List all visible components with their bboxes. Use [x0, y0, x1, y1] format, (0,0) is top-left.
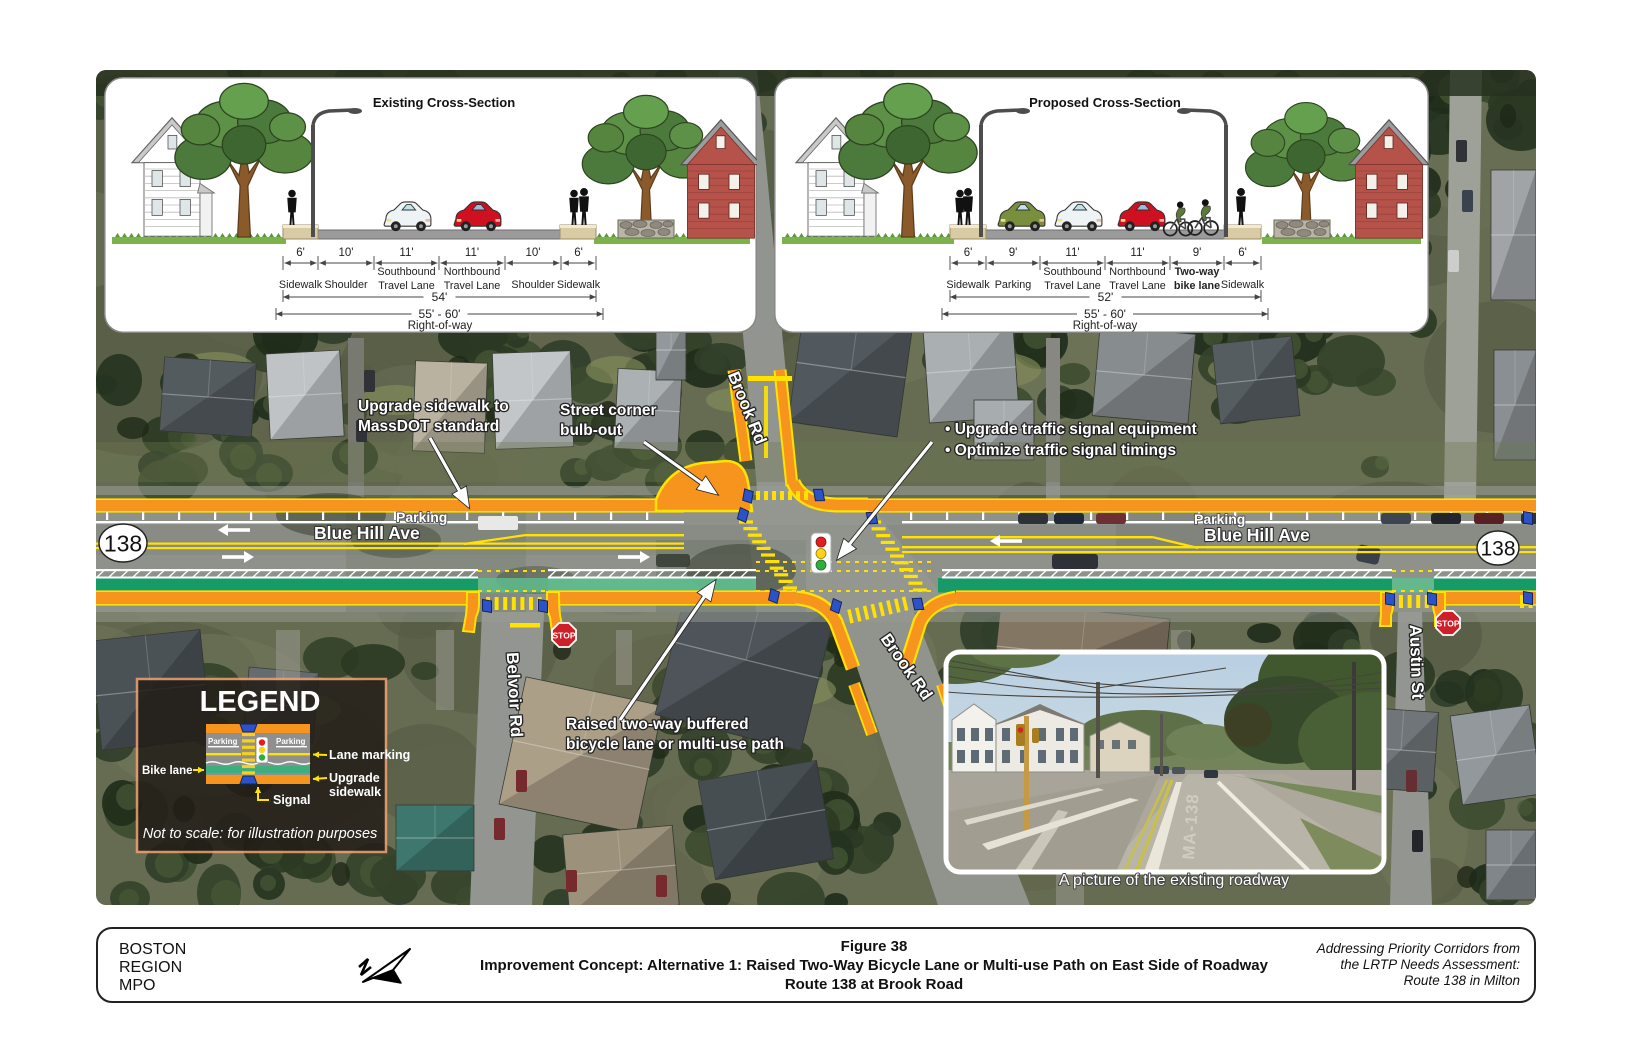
- svg-text:Not to scale: for illustration: Not to scale: for illustration purposes: [143, 826, 378, 842]
- svg-text:Travel Lane: Travel Lane: [444, 280, 501, 292]
- svg-text:STOP: STOP: [553, 631, 576, 641]
- svg-text:Signal: Signal: [273, 793, 311, 807]
- svg-text:6': 6': [296, 247, 305, 259]
- svg-text:Right-of-way: Right-of-way: [408, 320, 473, 332]
- svg-text:MassDOT standard: MassDOT standard: [358, 418, 499, 435]
- svg-text:Sidewalk: Sidewalk: [279, 279, 323, 291]
- svg-text:Sidewalk: Sidewalk: [1221, 279, 1265, 291]
- svg-text:6': 6': [574, 247, 583, 259]
- svg-text:Southbound: Southbound: [377, 266, 435, 278]
- svg-text:Lane marking: Lane marking: [329, 748, 410, 762]
- svg-text:Travel Lane: Travel Lane: [1044, 280, 1101, 292]
- svg-text:Parking: Parking: [995, 279, 1032, 291]
- svg-text:52': 52': [1098, 290, 1114, 304]
- svg-text:Shoulder: Shoulder: [511, 279, 555, 291]
- svg-text:bulb-out: bulb-out: [560, 422, 622, 439]
- svg-text:Travel Lane: Travel Lane: [378, 280, 435, 292]
- svg-text:Right-of-way: Right-of-way: [1073, 320, 1138, 332]
- svg-text:55' - 60': 55' - 60': [419, 307, 461, 321]
- svg-text:• Optimize traffic signal timi: • Optimize traffic signal timings: [945, 442, 1176, 459]
- svg-text:6': 6': [1238, 247, 1247, 259]
- svg-text:Austin St: Austin St: [1406, 624, 1428, 700]
- svg-text:11': 11': [465, 247, 479, 259]
- svg-text:STOP: STOP: [1437, 619, 1460, 629]
- svg-text:11': 11': [1065, 247, 1079, 259]
- svg-text:Sidewalk: Sidewalk: [557, 279, 601, 291]
- svg-text:9': 9': [1009, 247, 1018, 259]
- svg-text:Parking: Parking: [276, 737, 305, 746]
- svg-text:Shoulder: Shoulder: [324, 279, 368, 291]
- svg-text:bike lane: bike lane: [1174, 280, 1220, 292]
- svg-text:• Upgrade traffic signal equip: • Upgrade traffic signal equipment: [945, 421, 1197, 438]
- svg-text:bicycle lane or multi-use path: bicycle lane or multi-use path: [566, 736, 784, 753]
- svg-text:Upgrade sidewalk to: Upgrade sidewalk to: [358, 398, 509, 415]
- svg-text:11': 11': [1130, 247, 1144, 259]
- svg-text:54': 54': [432, 290, 448, 304]
- svg-text:Northbound: Northbound: [444, 266, 500, 278]
- svg-text:Travel Lane: Travel Lane: [1109, 280, 1166, 292]
- svg-text:6': 6': [964, 247, 973, 259]
- svg-text:Upgrade: Upgrade: [329, 771, 380, 785]
- svg-text:10': 10': [339, 247, 354, 259]
- svg-text:Existing Cross-Section: Existing Cross-Section: [373, 95, 515, 110]
- svg-text:138: 138: [104, 530, 142, 556]
- svg-text:Blue Hill Ave: Blue Hill Ave: [1204, 525, 1310, 545]
- svg-text:Northbound: Northbound: [1109, 266, 1165, 278]
- svg-text:LEGEND: LEGEND: [200, 686, 321, 718]
- svg-text:Proposed Cross-Section: Proposed Cross-Section: [1029, 95, 1181, 110]
- svg-text:sidewalk: sidewalk: [329, 785, 381, 799]
- svg-text:Blue Hill Ave: Blue Hill Ave: [314, 523, 420, 543]
- svg-text:Two-way: Two-way: [1175, 266, 1220, 278]
- svg-text:Raised two-way buffered: Raised two-way buffered: [566, 716, 749, 733]
- svg-text:9': 9': [1193, 247, 1202, 259]
- svg-text:A picture of the existing road: A picture of the existing roadway: [1059, 872, 1289, 889]
- svg-text:Street corner: Street corner: [560, 402, 656, 419]
- svg-text:Southbound: Southbound: [1043, 266, 1101, 278]
- svg-text:10': 10': [526, 247, 541, 259]
- svg-text:55' - 60': 55' - 60': [1084, 307, 1126, 321]
- svg-text:Bike lane: Bike lane: [142, 765, 193, 777]
- svg-text:Parking: Parking: [208, 737, 237, 746]
- svg-text:138: 138: [1480, 538, 1515, 561]
- svg-text:Sidewalk: Sidewalk: [946, 279, 990, 291]
- svg-text:11': 11': [399, 247, 413, 259]
